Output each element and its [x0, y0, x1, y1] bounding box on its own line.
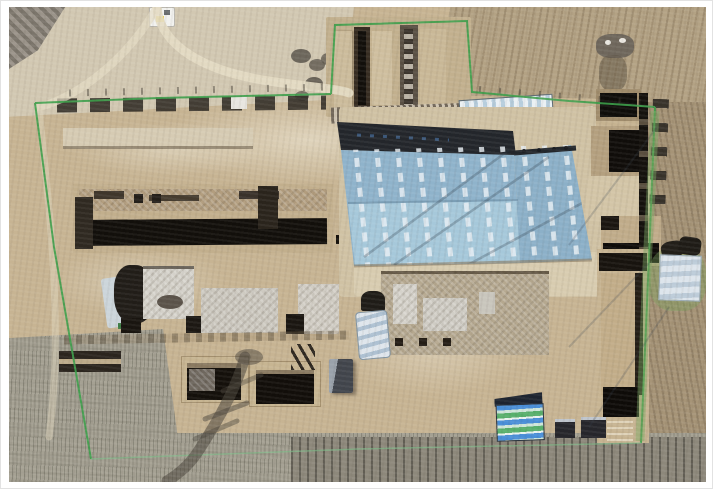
ground-lines-overlay: [9, 7, 706, 482]
photo-frame: [0, 0, 713, 489]
dirt-road: [39, 7, 349, 437]
aerial-photo: [9, 7, 706, 482]
grass-strip-east: [640, 111, 655, 441]
pylon-shadow: [167, 349, 263, 481]
perimeter-fence: [35, 21, 655, 459]
perimeter-fence-south: [91, 443, 641, 459]
